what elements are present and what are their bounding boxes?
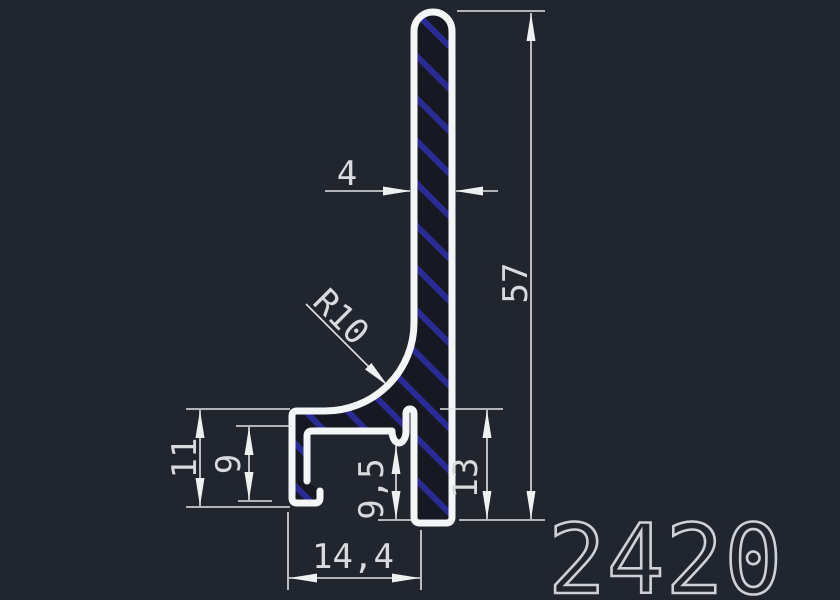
dim-57-arrow-down-icon (527, 491, 536, 519)
dim-text-radius: R10 (305, 281, 377, 353)
profile-drawing-svg: 4 57 13 9,5 11 9 14,4 R10 2420 (0, 0, 840, 600)
dim-r10-arrow-icon (365, 363, 388, 386)
dim-95-arrow-down-icon (392, 491, 401, 519)
dim-text-height: 57 (496, 263, 536, 304)
dim-text-step: 13 (446, 458, 486, 499)
dim-text-arm-outer: 11 (165, 438, 205, 479)
dim-9-arrow-down-icon (245, 472, 254, 500)
dim-4-arrow-right-icon (383, 187, 411, 196)
dim-text-thickness: 4 (337, 154, 357, 194)
dim-text-base-width: 14,4 (312, 537, 394, 577)
dim-144-arrow-right-icon (392, 574, 420, 583)
dim-11-arrow-down-icon (196, 478, 205, 506)
dim-text-slot-depth: 9,5 (352, 458, 392, 519)
dim-4-arrow-left-icon (455, 187, 483, 196)
dim-95-arrow-up-icon (392, 446, 401, 474)
part-number: 2420 (548, 504, 783, 600)
dim-9-arrow-up-icon (245, 427, 254, 455)
profile-section-hatch (292, 12, 452, 523)
dim-11-arrow-up-icon (196, 410, 205, 438)
dim-text-arm-inner: 9 (209, 454, 249, 474)
dim-13-arrow-up-icon (483, 410, 492, 438)
cad-drawing-canvas: 4 57 13 9,5 11 9 14,4 R10 2420 (0, 0, 840, 600)
dim-57-arrow-up-icon (527, 13, 536, 41)
